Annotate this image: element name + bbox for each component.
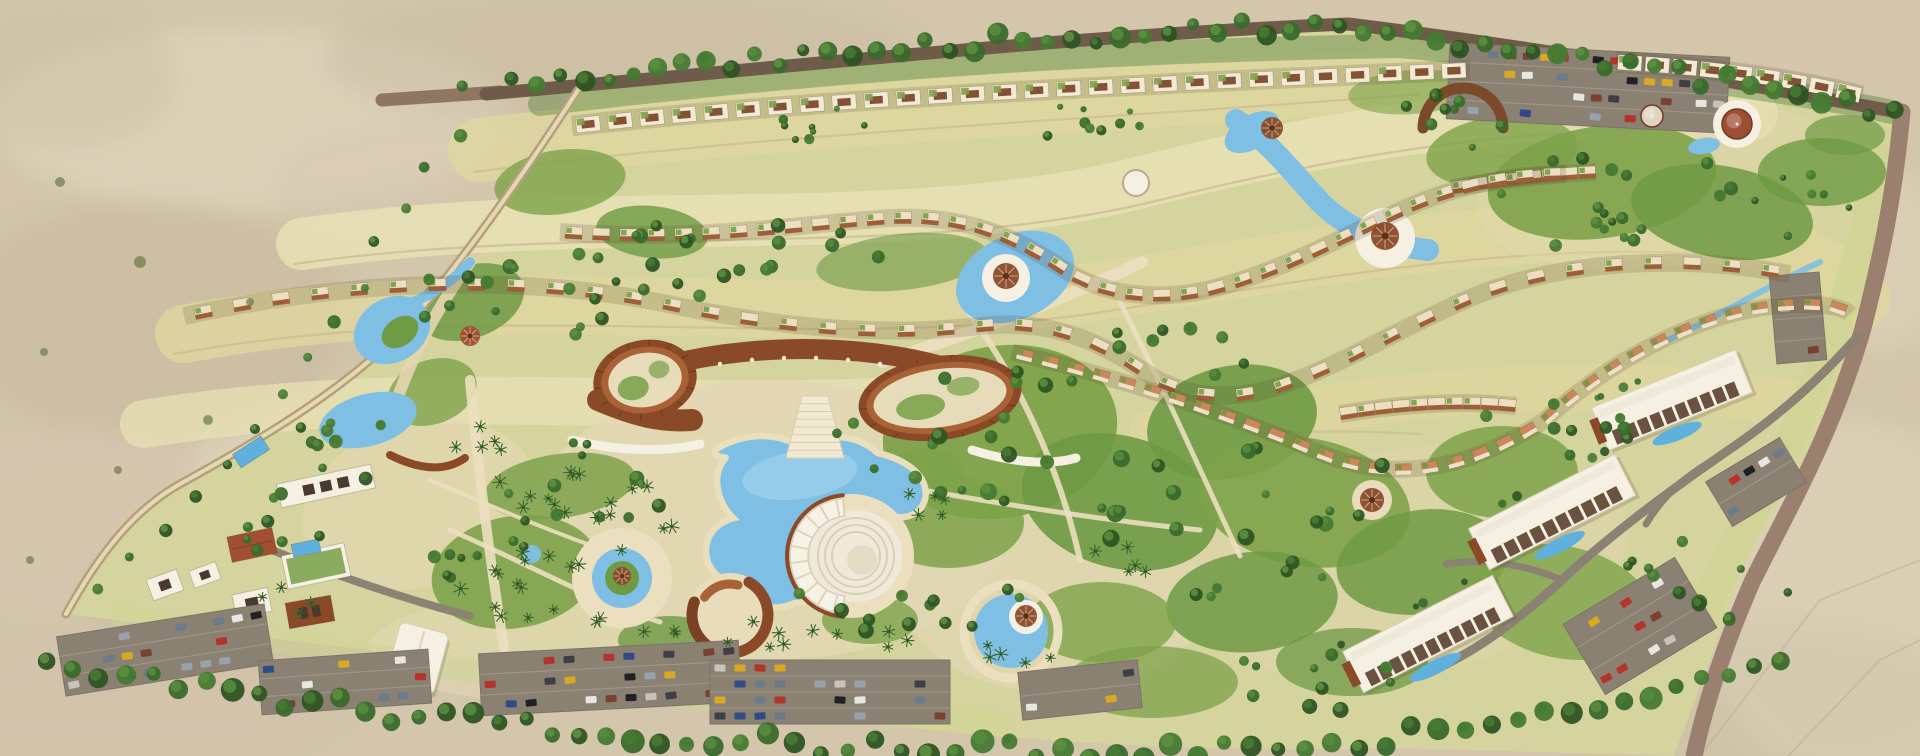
east-lagoon-gazebo — [1371, 222, 1399, 250]
white-gazebo — [1641, 105, 1663, 127]
round-pavilion — [1123, 170, 1149, 196]
se-pond-gazebo — [1015, 605, 1037, 627]
stream-gazebo — [1261, 117, 1283, 139]
ring-island-gazebo — [613, 567, 631, 585]
aerial-render-canvas — [0, 0, 1920, 756]
amphitheater-stage — [847, 545, 877, 575]
parking-east — [1769, 272, 1826, 364]
parking-south-b — [710, 660, 950, 724]
masterplan-render — [0, 0, 1920, 756]
park-gazebo — [1360, 488, 1384, 512]
dome-clubhouse — [1722, 109, 1752, 139]
parking-south-a — [479, 640, 742, 716]
north-lagoon-gazebo — [993, 263, 1019, 289]
west-lagoon-gazebo — [460, 326, 480, 346]
